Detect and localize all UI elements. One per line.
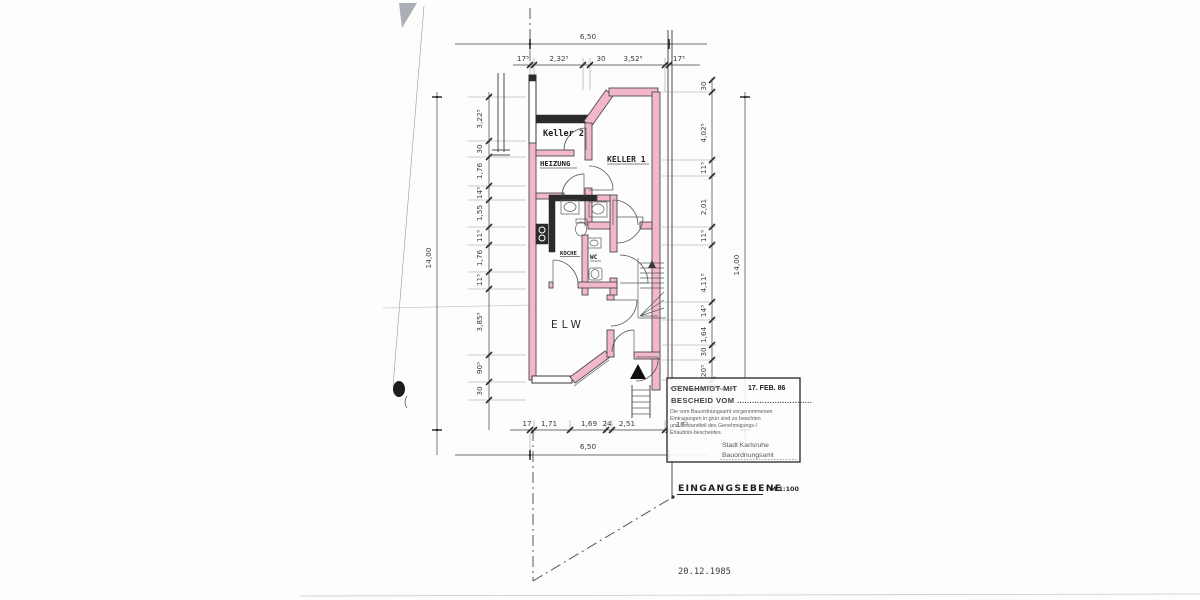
room-label-keller1: KELLER 1 <box>607 155 646 164</box>
svg-text:4,11⁵: 4,11⁵ <box>699 273 708 292</box>
plan-title: EINGANGSEBENE <box>678 483 782 494</box>
stamp-line2: BESCHEID VOM ...........................… <box>671 396 812 405</box>
dim-top-4: 17⁵ <box>673 54 685 63</box>
keller2-bottom-wall <box>536 150 574 156</box>
dim-bottom-1: 1,71 <box>541 419 557 428</box>
svg-text:4,02⁵: 4,02⁵ <box>699 123 708 142</box>
stamp-line1: GENEHMIGT MIT <box>671 384 737 393</box>
bath-right-wall-a <box>610 195 617 252</box>
svg-text:1,64: 1,64 <box>699 327 708 344</box>
svg-text:14⁵: 14⁵ <box>699 305 708 317</box>
svg-text:30: 30 <box>475 144 484 154</box>
scan-artifacts <box>300 3 1200 596</box>
entrance-arrow <box>630 364 646 379</box>
svg-text:14⁵: 14⁵ <box>475 187 484 199</box>
dim-top-1: 2,32⁵ <box>549 54 568 63</box>
svg-text:11⁵: 11⁵ <box>475 230 484 242</box>
building-walls <box>529 75 660 390</box>
svg-text:11⁵: 11⁵ <box>699 230 708 242</box>
keller1-bottom-wall-a <box>588 222 613 229</box>
svg-text:30: 30 <box>475 386 484 396</box>
svg-text:2,01: 2,01 <box>699 199 708 215</box>
toilet <box>576 222 587 236</box>
room-label-wc: WC <box>590 254 598 261</box>
approval-stamp: GENEHMIGT MIT 17. FEB. 86 BESCHEID VOM .… <box>667 378 812 462</box>
plan-title-block: EINGANGSEBENE M 1:100 20.12.1985 <box>677 483 799 577</box>
bath-bottom-wall <box>578 282 617 288</box>
dim-bottom-2: 1,69 <box>581 419 598 428</box>
stamp-body4: Erlaubnis-bescheides. <box>670 430 722 436</box>
plan-date: 20.12.1985 <box>678 567 731 577</box>
dim-top-2: 30 <box>596 54 606 63</box>
svg-text:90⁵: 90⁵ <box>475 362 484 374</box>
left-wall <box>529 143 536 380</box>
svg-text:30: 30 <box>699 81 708 91</box>
svg-text:30: 30 <box>699 347 708 357</box>
stamp-authority2: Bauordnungsamt <box>722 452 774 459</box>
dim-top-total: 6,50 <box>580 32 597 41</box>
svg-text:20⁵: 20⁵ <box>699 365 708 377</box>
dim-bottom-5: 17⁵ <box>676 420 688 429</box>
bath-left-wall <box>549 201 555 252</box>
stamp-authority1: Stadt Karlsruhe <box>722 442 769 449</box>
dim-bottom-total: 6,50 <box>580 442 597 451</box>
svg-text:1,76: 1,76 <box>475 250 484 267</box>
neighbor-wall-fragment <box>492 73 510 155</box>
dim-right-total: 14,00 <box>732 254 741 275</box>
svg-text:1,55: 1,55 <box>475 205 484 221</box>
dim-top-0: 17⁵ <box>517 54 529 63</box>
dim-bottom-4: 2,51 <box>619 419 635 428</box>
left-wall-upper <box>529 75 536 145</box>
svg-text:3,85⁵: 3,85⁵ <box>475 312 484 331</box>
scanned-floor-plan-page: Keller 2 HEIZUNG KELLER 1 KOCHE WC ELW 6… <box>0 0 1200 600</box>
elw-hall-divider <box>607 330 614 357</box>
dim-left-total: 14,00 <box>424 247 433 268</box>
exterior-stair <box>632 385 650 418</box>
right-wall <box>652 92 660 390</box>
dim-bottom-3: 24 <box>602 419 612 428</box>
dim-bottom-0: 17 <box>522 419 532 428</box>
bottom-wall-left <box>532 376 572 383</box>
bottom-wall-right <box>634 352 660 359</box>
stamp-body1: Die vom Bauordnungsamt vorgenommenen <box>670 409 773 415</box>
svg-text:3,22⁵: 3,22⁵ <box>475 109 484 128</box>
top-wall <box>609 88 658 96</box>
room-label-heizung: HEIZUNG <box>540 159 570 168</box>
stamp-date: 17. FEB. 86 <box>748 385 785 392</box>
top-existing-wall <box>536 115 588 123</box>
room-label-keller2: Keller 2 <box>543 129 584 139</box>
svg-text:11⁵: 11⁵ <box>699 162 708 174</box>
room-label-elw: ELW <box>551 319 585 331</box>
svg-text:1,76: 1,76 <box>475 163 484 180</box>
svg-text:11⁵: 11⁵ <box>475 274 484 286</box>
floor-plan-drawing: Keller 2 HEIZUNG KELLER 1 KOCHE WC ELW 6… <box>0 0 1200 600</box>
interior-stair <box>638 258 666 318</box>
tree-symbol <box>393 381 405 397</box>
room-label-kueche: KOCHE <box>560 251 577 257</box>
entrance-ramp-wall <box>570 351 610 383</box>
room-labels: Keller 2 HEIZUNG KELLER 1 KOCHE WC ELW <box>540 129 649 331</box>
dim-top-3: 3,52⁵ <box>623 54 642 63</box>
plan-scale: M 1:100 <box>770 485 799 493</box>
